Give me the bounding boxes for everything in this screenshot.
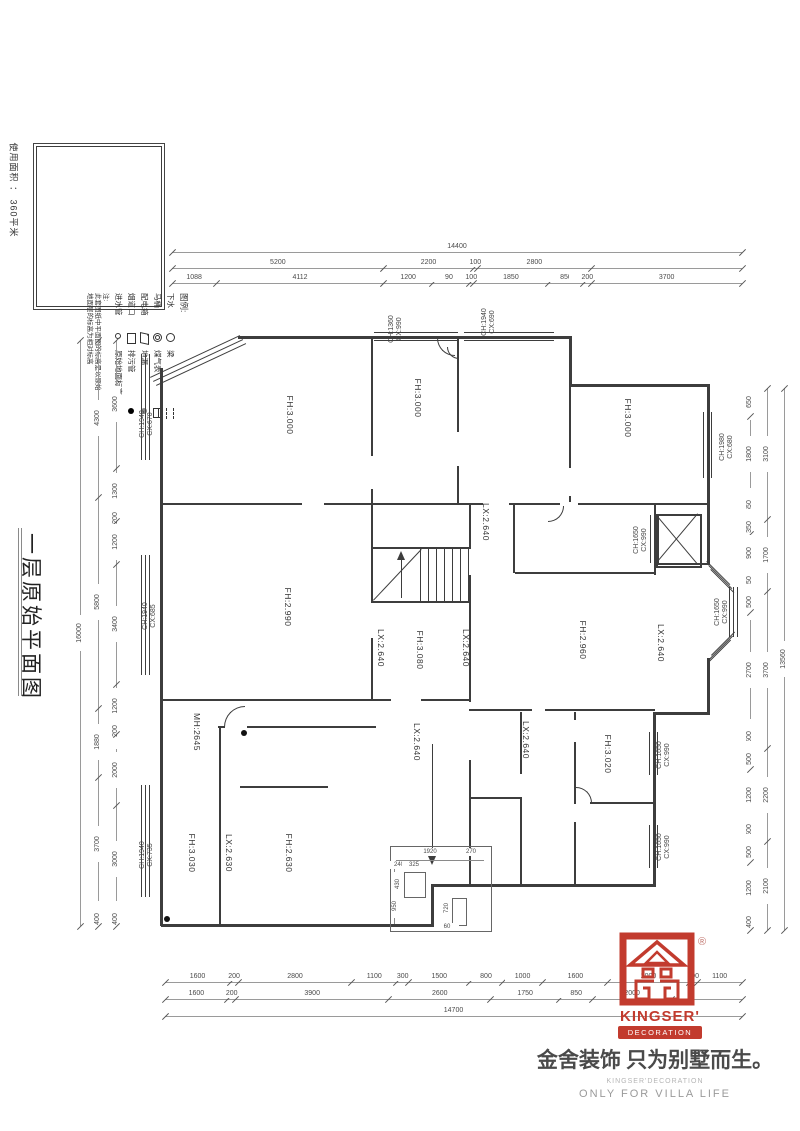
window <box>729 587 739 637</box>
porch-dim: 1920 <box>418 848 442 856</box>
dim-label: 3400 <box>112 606 120 642</box>
bay-window-line <box>707 640 731 664</box>
room-label: FH:3.000 <box>623 396 633 440</box>
wall <box>371 336 373 456</box>
title-rule-outer <box>18 528 19 696</box>
stair-riser <box>468 549 469 601</box>
door-swing-arc <box>548 506 564 522</box>
legend-row: 烟道口排污管 <box>125 293 138 449</box>
dim-label: 100 <box>457 259 493 267</box>
legend-item-label: 配电箱 <box>139 293 150 333</box>
window-label: CH:1940CX:690 <box>481 302 497 342</box>
wall <box>469 505 471 549</box>
stair-riser <box>420 549 421 601</box>
wall <box>161 699 391 701</box>
dim-label: 3700 <box>649 274 685 282</box>
dim-label: 2200 <box>763 777 771 813</box>
wall <box>371 505 373 603</box>
room-label: FH:2.960 <box>578 618 588 662</box>
dim-label: 2700 <box>746 652 754 688</box>
wall <box>371 489 373 505</box>
dim-label: 100 <box>453 274 489 282</box>
dim-label: 4112 <box>282 274 318 282</box>
dim-label: 200 <box>569 274 605 282</box>
legend-item-label: 排污管 <box>126 350 137 408</box>
bay-window-line <box>706 561 730 585</box>
sewage-icon <box>129 408 135 414</box>
window-label: CH:1650CX:990 <box>656 827 672 867</box>
dim-label: 3700 <box>763 652 771 688</box>
dim-label: 2000 <box>112 752 120 788</box>
dim-label: 800 <box>468 973 504 981</box>
wall <box>590 802 656 804</box>
stair-arrow-line <box>401 558 402 598</box>
room-label: FH:2.990 <box>283 585 293 629</box>
room-label: FH:3.000 <box>285 393 295 437</box>
window-label: CH:1940CX:670 <box>139 404 155 444</box>
wall <box>371 638 373 701</box>
dim-label: 3700 <box>94 826 102 862</box>
kingser-logo-icon <box>618 932 696 1006</box>
door-opening <box>302 502 324 506</box>
dim-label: 3900 <box>294 990 330 998</box>
dim-label: 3600 <box>112 386 120 422</box>
dim-label: 200 <box>214 990 250 998</box>
window-label: CH:1650CX:990 <box>633 520 649 560</box>
legend-row: 进水管原始地面标高 <box>112 293 125 449</box>
door-swing-arc <box>447 347 459 359</box>
room-label: LX:2.640 <box>376 626 386 670</box>
wall <box>569 386 571 468</box>
wall <box>569 384 710 387</box>
panel-icon <box>140 332 149 345</box>
porch-dim: 720 <box>443 896 451 920</box>
dim-label: 5200 <box>260 259 296 267</box>
elevation-dot <box>241 730 247 736</box>
wall <box>515 572 656 574</box>
dim-label: 1500 <box>421 973 457 981</box>
dim-label: 1880 <box>94 724 102 760</box>
dim-label: 2600 <box>422 990 458 998</box>
brand-sub: DECORATION <box>618 1026 702 1039</box>
legend-item-label: 下水 <box>165 293 176 333</box>
flue-icon <box>127 333 136 344</box>
porch-dim: 430 <box>394 872 402 896</box>
legend-item-label: 进水管 <box>113 293 124 333</box>
room-label: LX:2.630 <box>224 831 234 875</box>
legend-item-label: 马桶 <box>152 293 163 333</box>
window-label: CH:1360CX:990 <box>388 309 404 349</box>
brand-footer-en2: ONLY FOR VILLA LIFE <box>520 1088 790 1100</box>
dim-label: 14700 <box>436 1007 472 1015</box>
brand-footer-en1: KINGSER'DECORATION <box>520 1078 790 1085</box>
dim-label: 1000 <box>505 973 541 981</box>
dim-label: 5800 <box>94 584 102 620</box>
door-swing-arc <box>224 706 245 727</box>
wall <box>240 786 328 788</box>
room-label: FH:3.000 <box>413 376 423 420</box>
stair-riser <box>460 549 461 601</box>
dim-label: 1600 <box>180 973 216 981</box>
wall <box>160 368 163 926</box>
dim-label: 2800 <box>516 259 552 267</box>
porch-dim: 270 <box>459 848 483 856</box>
dim-label: 400 <box>94 901 102 937</box>
bay-window-line <box>710 569 734 593</box>
dim-label: 1850 <box>493 274 529 282</box>
dim-label: 1100 <box>702 973 738 981</box>
bay-window-line <box>708 565 732 589</box>
dim-label: 850 <box>558 990 594 998</box>
room-label: LX:2.640 <box>481 500 491 544</box>
dim-label: 3100 <box>763 436 771 472</box>
double-circle-icon <box>153 333 162 342</box>
wall <box>373 547 471 549</box>
wall <box>457 466 459 505</box>
stair-up-arrow <box>397 551 405 560</box>
room-label: LX:2.640 <box>461 626 471 670</box>
legend-box: 图例: 下水梁马桶煤气表配电箱地漏烟道口排污管进水管原始地面标高 注:此套图纸中… <box>33 143 165 310</box>
dim-label: 2800 <box>277 973 313 981</box>
porch-dim: 60 <box>435 923 459 931</box>
wall <box>574 822 576 886</box>
room-label: MH:2645 <box>192 710 202 754</box>
wall <box>219 726 221 926</box>
dim-label: 1600 <box>557 973 593 981</box>
bay-window-line <box>711 632 735 656</box>
dim-label: 1700 <box>763 537 771 573</box>
room-label: LX:2.640 <box>521 718 531 762</box>
dim-label: 1600 <box>178 990 214 998</box>
wall <box>421 699 471 701</box>
room-label: FH:3.080 <box>415 628 425 672</box>
window-label: CH:1650CX:990 <box>714 592 730 632</box>
porch-dim: 325 <box>402 861 426 869</box>
registered-mark: ® <box>698 936 706 948</box>
dim-label: 16000 <box>76 615 84 651</box>
wall <box>569 336 572 387</box>
elevation-dot <box>164 916 170 922</box>
stair-riser <box>428 549 429 601</box>
window <box>464 332 554 341</box>
wall <box>574 712 576 720</box>
window-label: CH:1940CX:735 <box>139 835 155 875</box>
wall <box>371 601 471 603</box>
room-label: LX:2.640 <box>412 720 422 764</box>
dim-line <box>172 283 742 284</box>
stair-riser <box>436 549 437 601</box>
dim-label: 1800 <box>746 436 754 472</box>
porch-box <box>404 872 426 898</box>
wall <box>545 709 655 711</box>
dim-label: 200 <box>216 973 252 981</box>
stair-riser <box>444 549 445 601</box>
dim-label: 1200 <box>390 274 426 282</box>
dim-label: 1088 <box>176 274 212 282</box>
dim-label: 3000 <box>112 841 120 877</box>
circle-icon <box>166 333 175 342</box>
floorplan-sheet: 使用面积 ： 360平米 一层原始平面图 图例: 下水梁马桶煤气表配电箱地漏烟道… <box>0 0 800 1131</box>
room-label: LX:2.640 <box>656 621 666 665</box>
dim-label: 2100 <box>763 868 771 904</box>
window <box>703 412 712 478</box>
porch-dim: 950 <box>391 894 399 918</box>
door-swing-arc <box>576 787 592 803</box>
beam-icon <box>167 408 175 419</box>
dim-label: 2200 <box>411 259 447 267</box>
dim-label: 300 <box>385 973 421 981</box>
dim-label: 13560 <box>780 641 788 677</box>
dim-label: 14400 <box>439 243 475 251</box>
dim-line <box>172 268 742 269</box>
dim-label: 1200 <box>112 524 120 560</box>
porch-box <box>452 898 467 926</box>
window-label: CH:1650CX:990 <box>656 735 672 775</box>
wall <box>161 503 709 505</box>
dim-label: 1200 <box>746 777 754 813</box>
room-label: FH:3.020 <box>603 732 613 776</box>
legend-item-label: 烟道口 <box>126 293 137 333</box>
wall <box>653 712 710 715</box>
stair-riser <box>452 549 453 601</box>
dim-line <box>172 252 742 253</box>
dim-label: 4300 <box>94 400 102 436</box>
usable-area-note: 使用面积 ： 360平米 <box>8 143 21 263</box>
room-label: FH:3.030 <box>187 831 197 875</box>
wall <box>469 709 532 711</box>
title-rule-inner <box>21 528 22 696</box>
dim-label: 1750 <box>507 990 543 998</box>
brand-name: KINGSER' <box>618 1008 702 1025</box>
wall <box>707 658 710 715</box>
wall <box>520 797 522 886</box>
dim-label: 400 <box>112 901 120 937</box>
dim-label: 1200 <box>746 870 754 906</box>
wall <box>513 505 515 573</box>
room-label: FH:2.630 <box>284 831 294 875</box>
window-label: CH:1980CX:680 <box>719 427 735 467</box>
window-label: CH:1940CX:685 <box>142 596 158 636</box>
entry-arrow-line <box>432 744 433 858</box>
wall <box>470 797 522 799</box>
brand-tagline: 金舍装饰 只为别墅而生。 <box>520 1044 790 1074</box>
